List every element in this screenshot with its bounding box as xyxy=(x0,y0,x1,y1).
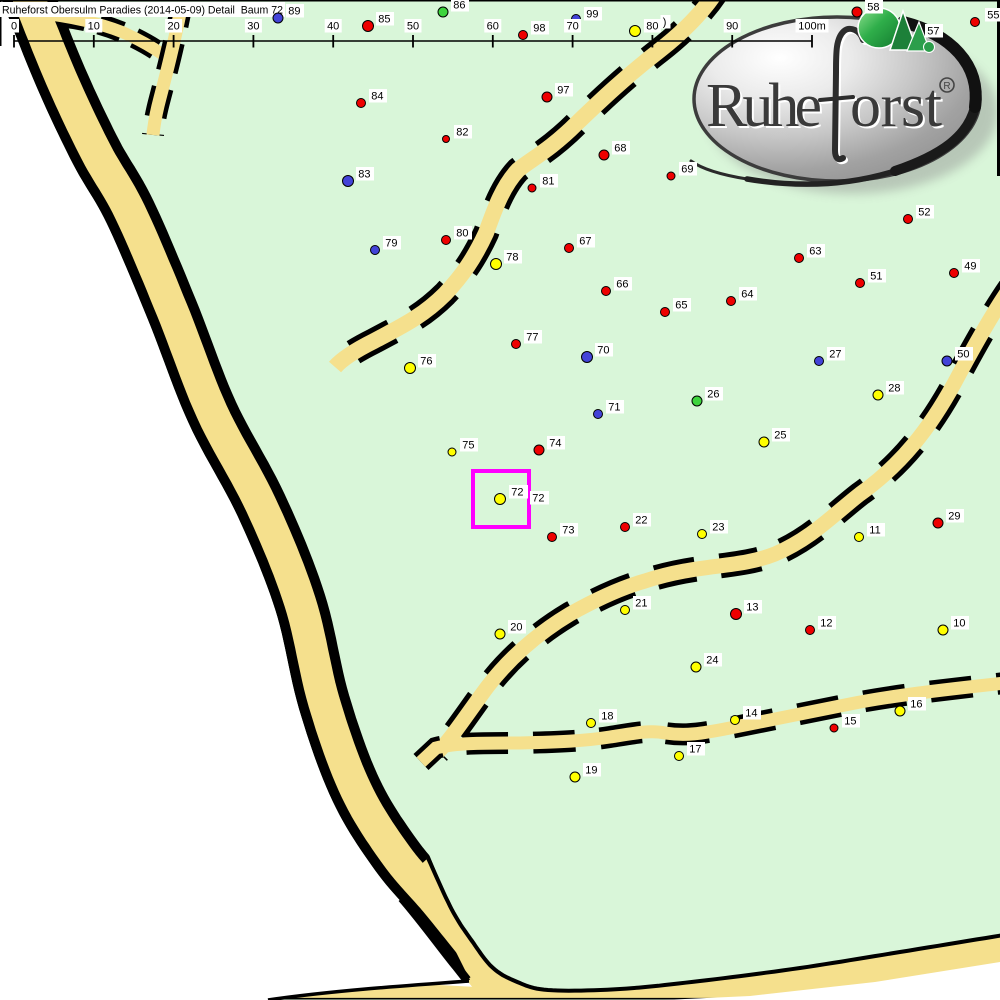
svg-text:58: 58 xyxy=(867,2,879,14)
svg-text:74: 74 xyxy=(549,438,561,450)
svg-text:12: 12 xyxy=(820,618,832,630)
svg-text:13: 13 xyxy=(746,602,758,614)
svg-text:97: 97 xyxy=(557,85,569,97)
svg-text:76: 76 xyxy=(420,356,432,368)
svg-text:15: 15 xyxy=(844,716,856,728)
svg-text:60: 60 xyxy=(487,21,499,33)
svg-text:24: 24 xyxy=(706,655,718,667)
svg-text:70: 70 xyxy=(566,21,578,33)
svg-text:83: 83 xyxy=(358,169,370,181)
svg-text:86: 86 xyxy=(453,0,465,12)
svg-text:): ) xyxy=(663,17,667,29)
svg-text:63: 63 xyxy=(809,246,821,258)
svg-text:50: 50 xyxy=(407,21,419,33)
svg-text:40: 40 xyxy=(327,21,339,33)
svg-text:78: 78 xyxy=(506,252,518,264)
svg-text:55: 55 xyxy=(987,10,999,22)
svg-text:82: 82 xyxy=(456,127,468,139)
svg-text:27: 27 xyxy=(829,349,841,361)
svg-text:73: 73 xyxy=(562,525,574,537)
svg-text:Ruhe: Ruhe xyxy=(706,72,822,140)
svg-text:23: 23 xyxy=(712,522,724,534)
svg-text:66: 66 xyxy=(616,279,628,291)
svg-text:69: 69 xyxy=(681,164,693,176)
svg-text:90: 90 xyxy=(726,21,738,33)
svg-text:28: 28 xyxy=(888,383,900,395)
svg-text:10: 10 xyxy=(953,618,965,630)
svg-text:30: 30 xyxy=(247,21,259,33)
svg-text:77: 77 xyxy=(526,332,538,344)
svg-text:16: 16 xyxy=(910,699,922,711)
svg-text:10: 10 xyxy=(88,21,100,33)
svg-text:80: 80 xyxy=(646,21,658,33)
svg-text:72: 72 xyxy=(532,493,544,505)
svg-text:21: 21 xyxy=(635,598,647,610)
svg-text:22: 22 xyxy=(635,515,647,527)
svg-text:67: 67 xyxy=(579,236,591,248)
svg-text:68: 68 xyxy=(614,143,626,155)
svg-text:84: 84 xyxy=(371,91,383,103)
svg-text:80: 80 xyxy=(456,228,468,240)
svg-text:orst: orst xyxy=(850,72,942,140)
svg-text:18: 18 xyxy=(601,711,613,723)
svg-text:85: 85 xyxy=(378,14,390,26)
svg-text:R: R xyxy=(943,81,950,92)
svg-text:50: 50 xyxy=(957,349,969,361)
svg-text:19: 19 xyxy=(585,765,597,777)
svg-text:26: 26 xyxy=(707,389,719,401)
svg-text:100m: 100m xyxy=(798,21,826,33)
svg-text:89: 89 xyxy=(288,6,300,18)
svg-text:71: 71 xyxy=(608,402,620,414)
svg-text:20: 20 xyxy=(167,21,179,33)
svg-text:11: 11 xyxy=(869,525,880,537)
svg-text:99: 99 xyxy=(586,9,598,21)
svg-text:70: 70 xyxy=(597,345,609,357)
svg-text:81: 81 xyxy=(542,176,554,188)
svg-text:79: 79 xyxy=(385,238,397,250)
svg-text:65: 65 xyxy=(675,300,687,312)
svg-text:52: 52 xyxy=(918,207,930,219)
svg-text:25: 25 xyxy=(774,430,786,442)
svg-text:14: 14 xyxy=(745,708,757,720)
svg-text:75: 75 xyxy=(462,440,474,452)
svg-text:49: 49 xyxy=(964,261,976,273)
svg-text:64: 64 xyxy=(741,289,753,301)
svg-text:Ruheforst Obersulm Paradies (2: Ruheforst Obersulm Paradies (2014-05-09)… xyxy=(2,5,283,17)
svg-text:17: 17 xyxy=(689,744,701,756)
svg-text:0: 0 xyxy=(11,21,17,33)
svg-text:51: 51 xyxy=(870,271,882,283)
svg-text:72: 72 xyxy=(511,487,523,499)
svg-text:29: 29 xyxy=(948,511,960,523)
svg-text:20: 20 xyxy=(510,622,522,634)
svg-text:98: 98 xyxy=(533,23,545,35)
svg-text:57: 57 xyxy=(927,26,939,38)
